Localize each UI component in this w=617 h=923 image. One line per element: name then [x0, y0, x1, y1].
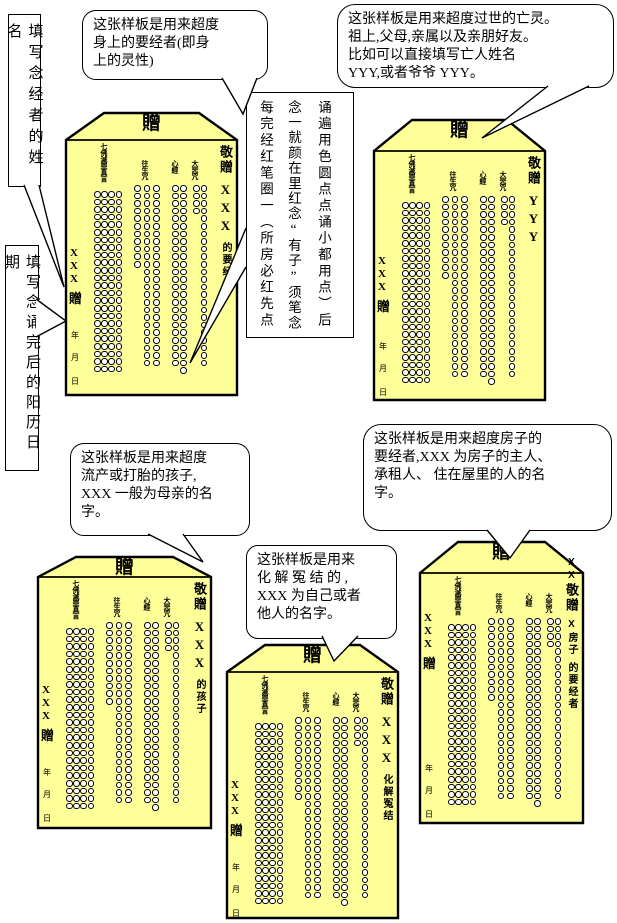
count-circle — [470, 624, 477, 631]
date-year-character: 年 — [425, 765, 433, 773]
count-circle — [116, 206, 123, 213]
count-circle — [305, 725, 312, 732]
count-circle — [424, 331, 431, 338]
count-circle — [116, 275, 123, 282]
count-circle — [125, 630, 132, 637]
count-circle — [488, 249, 495, 256]
count-circle — [108, 305, 115, 312]
count-circle — [462, 715, 469, 722]
count-circle — [534, 671, 541, 678]
count-circle — [480, 257, 487, 264]
count-circle — [333, 869, 340, 876]
count-circle — [94, 343, 101, 350]
count-circle — [269, 746, 276, 753]
count-circle — [488, 333, 495, 340]
count-circle — [509, 356, 516, 363]
count-circle — [507, 762, 514, 769]
count-circle — [547, 633, 554, 640]
count-circle — [424, 369, 431, 376]
count-circle — [144, 690, 151, 697]
count-circle — [152, 759, 159, 766]
count-circle — [269, 791, 276, 798]
count-circle — [262, 845, 269, 852]
count-circle — [269, 807, 276, 814]
count-circle — [507, 778, 514, 785]
callout-deceased: 这张样板是用来超度过世的亡灵。祖上,父母,亲属以及亲朋好友。比如可以直接填写亡人… — [337, 4, 614, 88]
count-circle — [362, 877, 369, 884]
count-circle — [507, 618, 514, 625]
count-circle — [333, 725, 340, 732]
count-circle — [409, 339, 416, 346]
count-circle — [201, 299, 208, 306]
count-circle — [73, 780, 80, 787]
roof-give-character: 贈 — [63, 114, 240, 133]
count-circle — [416, 377, 423, 384]
count-circle — [509, 348, 516, 355]
count-circle — [526, 671, 533, 678]
count-circle — [470, 677, 477, 684]
presenter-label: 敬贈 — [218, 145, 233, 175]
count-circle — [73, 681, 80, 688]
count-circle — [402, 217, 409, 224]
count-circle — [555, 709, 562, 716]
count-circle — [333, 793, 340, 800]
count-circle — [269, 822, 276, 829]
count-circle — [314, 740, 321, 747]
count-circle — [455, 670, 462, 677]
mantra-column-label: 七佛滅罪真言 — [407, 154, 416, 193]
count-circle — [277, 845, 284, 852]
count-circle — [480, 264, 487, 271]
count-circle — [152, 698, 159, 705]
count-circle — [409, 301, 416, 308]
count-circle — [442, 226, 449, 233]
count-circle — [277, 875, 284, 882]
count-circle — [73, 651, 80, 658]
count-circle — [262, 776, 269, 783]
envelope-outline — [224, 642, 401, 921]
count-circle — [416, 210, 423, 217]
count-circle — [354, 725, 361, 732]
count-circle — [73, 772, 80, 779]
count-circle — [66, 750, 73, 757]
count-circle — [555, 762, 562, 769]
count-circle — [305, 861, 312, 868]
count-circle — [488, 656, 495, 663]
count-circle — [526, 626, 533, 633]
count-circle — [470, 639, 477, 646]
count-circle — [116, 305, 123, 312]
count-circle — [116, 789, 123, 796]
count-circle — [101, 320, 108, 327]
count-circle — [507, 732, 514, 739]
count-circle — [262, 898, 269, 905]
count-circle — [501, 219, 508, 226]
count-circle — [165, 622, 172, 629]
count-circle — [255, 791, 262, 798]
count-circle — [509, 310, 516, 317]
presenter-label: 敬贈 — [379, 677, 394, 707]
count-circle — [73, 628, 80, 635]
count-circle — [470, 632, 477, 639]
count-circle — [480, 348, 487, 355]
count-circle — [165, 630, 172, 637]
count-circle — [448, 662, 455, 669]
count-circle — [341, 877, 348, 884]
count-circle — [94, 320, 101, 327]
count-circle — [341, 755, 348, 762]
count-circle — [480, 287, 487, 294]
count-circle — [262, 822, 269, 829]
count-circle — [341, 717, 348, 724]
count-circle — [180, 352, 187, 359]
count-circle — [80, 772, 87, 779]
count-circle — [144, 728, 151, 735]
count-circle — [153, 200, 160, 207]
count-circle — [461, 295, 468, 302]
count-circle — [108, 244, 115, 251]
count-circle — [101, 275, 108, 282]
count-circle — [333, 740, 340, 747]
count-circle — [534, 740, 541, 747]
count-circle — [462, 768, 469, 775]
count-circle — [555, 626, 562, 633]
count-circle — [153, 223, 160, 230]
count-circle — [116, 313, 123, 320]
count-circle — [455, 654, 462, 661]
envelope-children: 贈七佛滅罪真言往生咒心經大悲咒敬贈XXX的孩子XXX贈年月日 — [35, 554, 214, 831]
recipient-column: 敬贈YYY — [524, 156, 543, 247]
count-circle — [101, 252, 108, 259]
count-circle — [416, 217, 423, 224]
count-circle — [409, 232, 416, 239]
count-circle — [80, 803, 87, 810]
count-circle — [152, 804, 159, 811]
count-circle — [73, 704, 80, 711]
count-circle — [526, 755, 533, 762]
count-circle — [295, 732, 302, 739]
count-circle — [442, 204, 449, 211]
count-circle — [448, 715, 455, 722]
count-circle — [461, 363, 468, 370]
count-circle — [144, 698, 151, 705]
count-circle — [153, 246, 160, 253]
count-circle — [480, 318, 487, 325]
count-circle — [526, 747, 533, 754]
count-circle — [424, 210, 431, 217]
count-circle — [88, 696, 95, 703]
count-circle — [470, 692, 477, 699]
count-circle — [452, 348, 459, 355]
count-circle — [255, 822, 262, 829]
count-circle — [125, 637, 132, 644]
count-circle — [480, 242, 487, 249]
count-circle — [488, 295, 495, 302]
count-circle — [80, 681, 87, 688]
count-circle — [314, 763, 321, 770]
count-circle — [333, 861, 340, 868]
count-circle — [442, 242, 449, 249]
count-circle — [333, 884, 340, 891]
count-circle — [341, 831, 348, 838]
count-circle — [534, 686, 541, 693]
count-circle — [101, 199, 108, 206]
count-circle — [461, 264, 468, 271]
count-circle — [507, 709, 514, 716]
count-circle — [277, 829, 284, 836]
count-circle — [409, 278, 416, 285]
note-chanter-text: 填写念经者的姓名 — [4, 15, 46, 186]
count-circle — [116, 675, 123, 682]
count-circle — [462, 692, 469, 699]
count-circle — [144, 675, 151, 682]
count-circle — [534, 755, 541, 762]
count-circle — [455, 768, 462, 775]
count-circle — [462, 746, 469, 753]
count-circle — [295, 793, 302, 800]
count-circle — [462, 791, 469, 798]
date-month-character: 月 — [232, 886, 240, 894]
count-circle — [526, 717, 533, 724]
count-circle — [108, 313, 115, 320]
count-circle — [144, 253, 151, 260]
count-circle — [534, 770, 541, 777]
count-circle — [409, 263, 416, 270]
count-circle — [180, 253, 187, 260]
count-circle — [488, 694, 495, 701]
count-circle — [144, 637, 151, 644]
count-circle — [88, 742, 95, 749]
count-circle — [314, 839, 321, 846]
count-circle — [534, 747, 541, 754]
count-circle — [73, 636, 80, 643]
count-circle — [201, 291, 208, 298]
count-circle — [341, 725, 348, 732]
count-circle — [153, 307, 160, 314]
count-circle — [134, 193, 141, 200]
count-circle — [180, 307, 187, 314]
count-circle — [409, 354, 416, 361]
count-circle — [94, 206, 101, 213]
count-circle — [509, 363, 516, 370]
count-circle — [88, 780, 95, 787]
count-circle — [152, 713, 159, 720]
count-circle — [66, 734, 73, 741]
count-circle — [144, 238, 151, 245]
count-circle — [424, 316, 431, 323]
count-circle — [269, 723, 276, 730]
count-circle — [101, 328, 108, 335]
count-circle — [101, 237, 108, 244]
count-circle — [255, 807, 262, 814]
count-circle — [488, 264, 495, 271]
count-circle — [362, 725, 369, 732]
count-circle — [201, 345, 208, 352]
count-circle — [255, 776, 262, 783]
date-day-character: 日 — [379, 389, 387, 397]
count-circle — [470, 791, 477, 798]
count-circle — [448, 670, 455, 677]
count-circle — [461, 280, 468, 287]
count-circle — [416, 331, 423, 338]
count-circle — [416, 301, 423, 308]
count-circle — [452, 310, 459, 317]
count-circle — [488, 318, 495, 325]
count-circle — [526, 679, 533, 686]
count-circle — [416, 232, 423, 239]
count-circle — [455, 700, 462, 707]
count-circle — [193, 200, 200, 207]
mantra-column-label: 往生咒 — [112, 597, 121, 617]
count-circle — [409, 286, 416, 293]
count-circle — [526, 694, 533, 701]
count-circle — [173, 789, 180, 796]
count-circle — [305, 793, 312, 800]
count-circle — [134, 231, 141, 238]
callout-line: 这张样板是用来超度 — [81, 450, 239, 468]
count-circle — [66, 742, 73, 749]
count-circle — [201, 337, 208, 344]
count-circle — [470, 784, 477, 791]
count-circle — [173, 713, 180, 720]
count-circle — [555, 740, 562, 747]
count-circle — [333, 846, 340, 853]
count-circle — [66, 727, 73, 734]
count-circle — [470, 768, 477, 775]
count-circle — [507, 717, 514, 724]
count-circle — [277, 890, 284, 897]
count-circle — [534, 717, 541, 724]
count-circle — [66, 803, 73, 810]
count-circle — [498, 732, 505, 739]
count-circle — [424, 270, 431, 277]
count-circle — [193, 193, 200, 200]
count-circle — [152, 797, 159, 804]
count-circle — [448, 632, 455, 639]
count-circle — [452, 272, 459, 279]
count-circle — [462, 624, 469, 631]
callout-karmic-conflict: 这张样板是用来化 解 冤 结 的 ,XXX 为自己或者他人的名字。 — [246, 545, 397, 639]
count-circle — [152, 660, 159, 667]
count-circle — [416, 369, 423, 376]
count-circle — [314, 854, 321, 861]
count-circle — [116, 199, 123, 206]
count-circle — [424, 346, 431, 353]
count-circle — [448, 692, 455, 699]
count-circle — [461, 226, 468, 233]
count-circle — [314, 785, 321, 792]
count-circle — [341, 839, 348, 846]
count-circle — [402, 202, 409, 209]
count-circle — [144, 660, 151, 667]
count-circle — [144, 314, 151, 321]
count-circle — [201, 269, 208, 276]
count-circle — [88, 712, 95, 719]
count-circle — [362, 755, 369, 762]
count-circle — [152, 652, 159, 659]
count-circle — [452, 264, 459, 271]
count-circle — [416, 225, 423, 232]
count-circle — [480, 302, 487, 309]
mantra-column-label: 七佛滅罪真言 — [99, 143, 108, 182]
count-circle — [498, 778, 505, 785]
count-circle — [305, 801, 312, 808]
count-circle — [295, 747, 302, 754]
count-circle — [116, 351, 123, 358]
callout-line: 比如可以直接填写亡人姓名 — [348, 47, 603, 65]
count-circle — [509, 234, 516, 241]
count-circle — [172, 329, 179, 336]
count-circle — [80, 727, 87, 734]
count-circle — [262, 875, 269, 882]
count-circle — [555, 770, 562, 777]
count-circle — [255, 875, 262, 882]
count-circle — [501, 204, 508, 211]
date-month-character: 月 — [43, 791, 51, 799]
count-circle — [94, 229, 101, 236]
count-circle — [305, 763, 312, 770]
count-circle — [362, 801, 369, 808]
count-circle — [507, 671, 514, 678]
count-circle — [172, 314, 179, 321]
count-circle — [255, 761, 262, 768]
count-circle — [255, 845, 262, 852]
count-circle — [94, 351, 101, 358]
count-circle — [462, 654, 469, 661]
count-circle — [341, 801, 348, 808]
count-circle — [470, 776, 477, 783]
count-circle — [144, 352, 151, 359]
give-character: 贈 — [230, 824, 243, 837]
count-circle — [462, 639, 469, 646]
count-circle — [88, 628, 95, 635]
count-circle — [409, 369, 416, 376]
count-circle — [88, 788, 95, 795]
count-circle — [488, 671, 495, 678]
count-circle — [88, 750, 95, 757]
count-circle — [409, 210, 416, 217]
date-month-character: 月 — [71, 354, 79, 362]
count-circle — [402, 270, 409, 277]
count-circle — [362, 808, 369, 815]
count-circle — [269, 875, 276, 882]
count-circle — [101, 191, 108, 198]
count-circle — [507, 740, 514, 747]
date-day-character: 日 — [425, 811, 433, 819]
count-circle — [507, 694, 514, 701]
count-circle — [66, 704, 73, 711]
count-circle — [262, 738, 269, 745]
count-circle — [341, 846, 348, 853]
count-circle — [402, 331, 409, 338]
count-circle — [172, 322, 179, 329]
count-circle — [125, 675, 132, 682]
count-circle — [526, 724, 533, 731]
count-circle — [455, 632, 462, 639]
count-circle — [416, 286, 423, 293]
count-circle — [448, 730, 455, 737]
count-circle — [462, 738, 469, 745]
count-circle — [153, 208, 160, 215]
count-circle — [488, 371, 495, 378]
count-circle — [498, 664, 505, 671]
count-circle — [134, 246, 141, 253]
count-circle — [480, 219, 487, 226]
count-circle — [509, 340, 516, 347]
count-circle — [526, 648, 533, 655]
count-circle — [172, 215, 179, 222]
count-circle — [442, 211, 449, 218]
